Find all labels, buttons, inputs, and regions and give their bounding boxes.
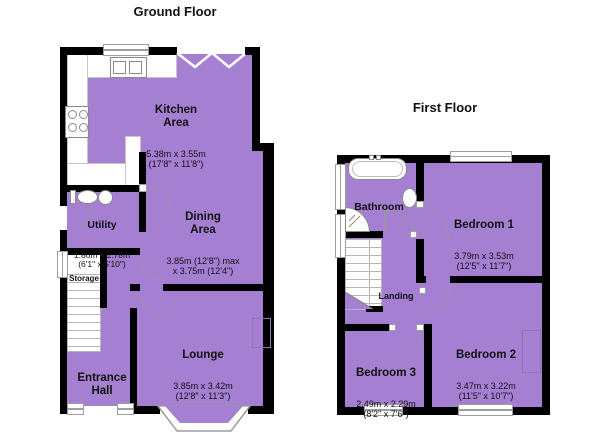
wall: [130, 308, 137, 406]
room-label-bedroom2: Bedroom 2 3.47m x 3.22m (11'5" x 10'7"): [456, 331, 516, 419]
room-name: Kitchen Area: [146, 104, 206, 130]
wall: [252, 47, 260, 145]
room-name: Storage: [69, 275, 99, 284]
wall: [60, 47, 67, 413]
burner-icon: [68, 123, 77, 132]
sink-basin-icon: [113, 61, 126, 74]
room-dims: 3.79m x 3.53m (12'5" x 11'7"): [454, 251, 514, 271]
room-label-lounge: Lounge 3.85m x 3.42m (12'8" x 11'3"): [173, 331, 233, 419]
room-name: Bedroom 2: [456, 349, 516, 362]
burner-icon: [79, 110, 88, 119]
staircase-icon: [345, 239, 382, 310]
burner-icon: [79, 123, 88, 132]
door-jamb: [410, 231, 417, 238]
room-label-bedroom3: Bedroom 3 2.49m x 2.29m (8'2" x 7'6"): [356, 349, 416, 436]
room-dims: 2.49m x 2.29m (8'2" x 7'6"): [356, 399, 416, 419]
wall: [416, 155, 424, 207]
utility-door-opening: [60, 206, 67, 230]
room-dims: 3.85m x 3.42m (12'8" x 11'3"): [173, 381, 233, 401]
room-name: Landing: [379, 291, 414, 301]
tap-icon: [376, 155, 381, 160]
room-label-bathroom: Bathroom: [354, 184, 404, 232]
chimney-breast: [252, 318, 271, 348]
room-name: Bathroom: [354, 202, 404, 214]
wall: [416, 276, 426, 283]
wall: [263, 143, 274, 414]
bathtub-icon: [352, 161, 403, 177]
wall: [248, 406, 274, 414]
bathroom-window: [335, 164, 346, 210]
sink-basin-icon: [129, 61, 142, 74]
door-jamb: [416, 201, 424, 208]
storage-window: [57, 251, 68, 278]
door-jamb: [416, 324, 424, 331]
room-label-landing: Landing: [379, 273, 414, 319]
room-name: Dining Area: [167, 211, 240, 237]
room-name: Lounge: [173, 349, 233, 362]
burner-icon: [68, 110, 77, 119]
room-dims: 5.38m x 3.55m (17'8" x 11'8"): [146, 149, 206, 169]
room-dims: 3.85m (12'8") max x 3.75m (12'4"): [167, 256, 240, 276]
wall: [337, 324, 392, 331]
stair-rail: [369, 239, 370, 310]
wall: [424, 324, 432, 407]
first-floor-title: First Floor: [413, 100, 477, 115]
chimney-breast: [522, 330, 541, 373]
floor-plan: Ground Floor First Floor Kitchen Area 5.…: [0, 0, 600, 436]
ground-floor-title: Ground Floor: [133, 4, 216, 19]
wash-basin-icon: [402, 188, 417, 208]
bedroom1-window: [450, 151, 512, 162]
room-name: Entrance Hall: [77, 372, 126, 398]
wall: [139, 192, 146, 232]
room-name: Bedroom 3: [356, 367, 416, 380]
door-jamb: [419, 287, 426, 294]
tap-icon: [369, 155, 374, 160]
room-label-dining: Dining Area 3.85m (12'8") max x 3.75m (1…: [167, 193, 240, 294]
room-dims: 3.47m x 3.22m (11'5" x 10'7"): [456, 381, 516, 401]
door-jamb: [389, 324, 396, 331]
room-label-kitchen: Kitchen Area 5.38m x 3.55m (17'8" x 11'8…: [146, 86, 206, 187]
room-label-entrance-hall: Entrance Hall: [77, 354, 126, 416]
room-label-storage: Storage: [69, 257, 99, 302]
wall: [542, 155, 550, 415]
wall: [130, 284, 140, 291]
kitchen-window: [103, 44, 149, 56]
room-name: Utility: [74, 220, 130, 232]
room-name: Bedroom 1: [454, 219, 514, 232]
room-label-bedroom1: Bedroom 1 3.79m x 3.53m (12'5" x 11'7"): [454, 201, 514, 289]
